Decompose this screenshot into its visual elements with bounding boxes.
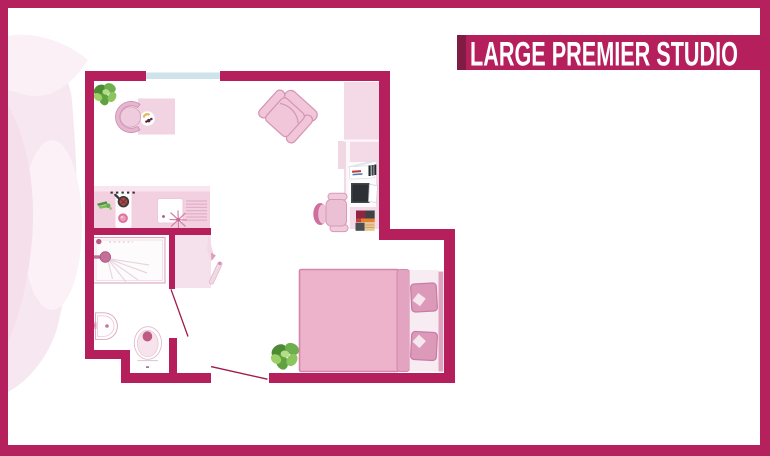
svg-text:LARGE PREMIER STUDIO: LARGE PREMIER STUDIO: [470, 36, 738, 74]
